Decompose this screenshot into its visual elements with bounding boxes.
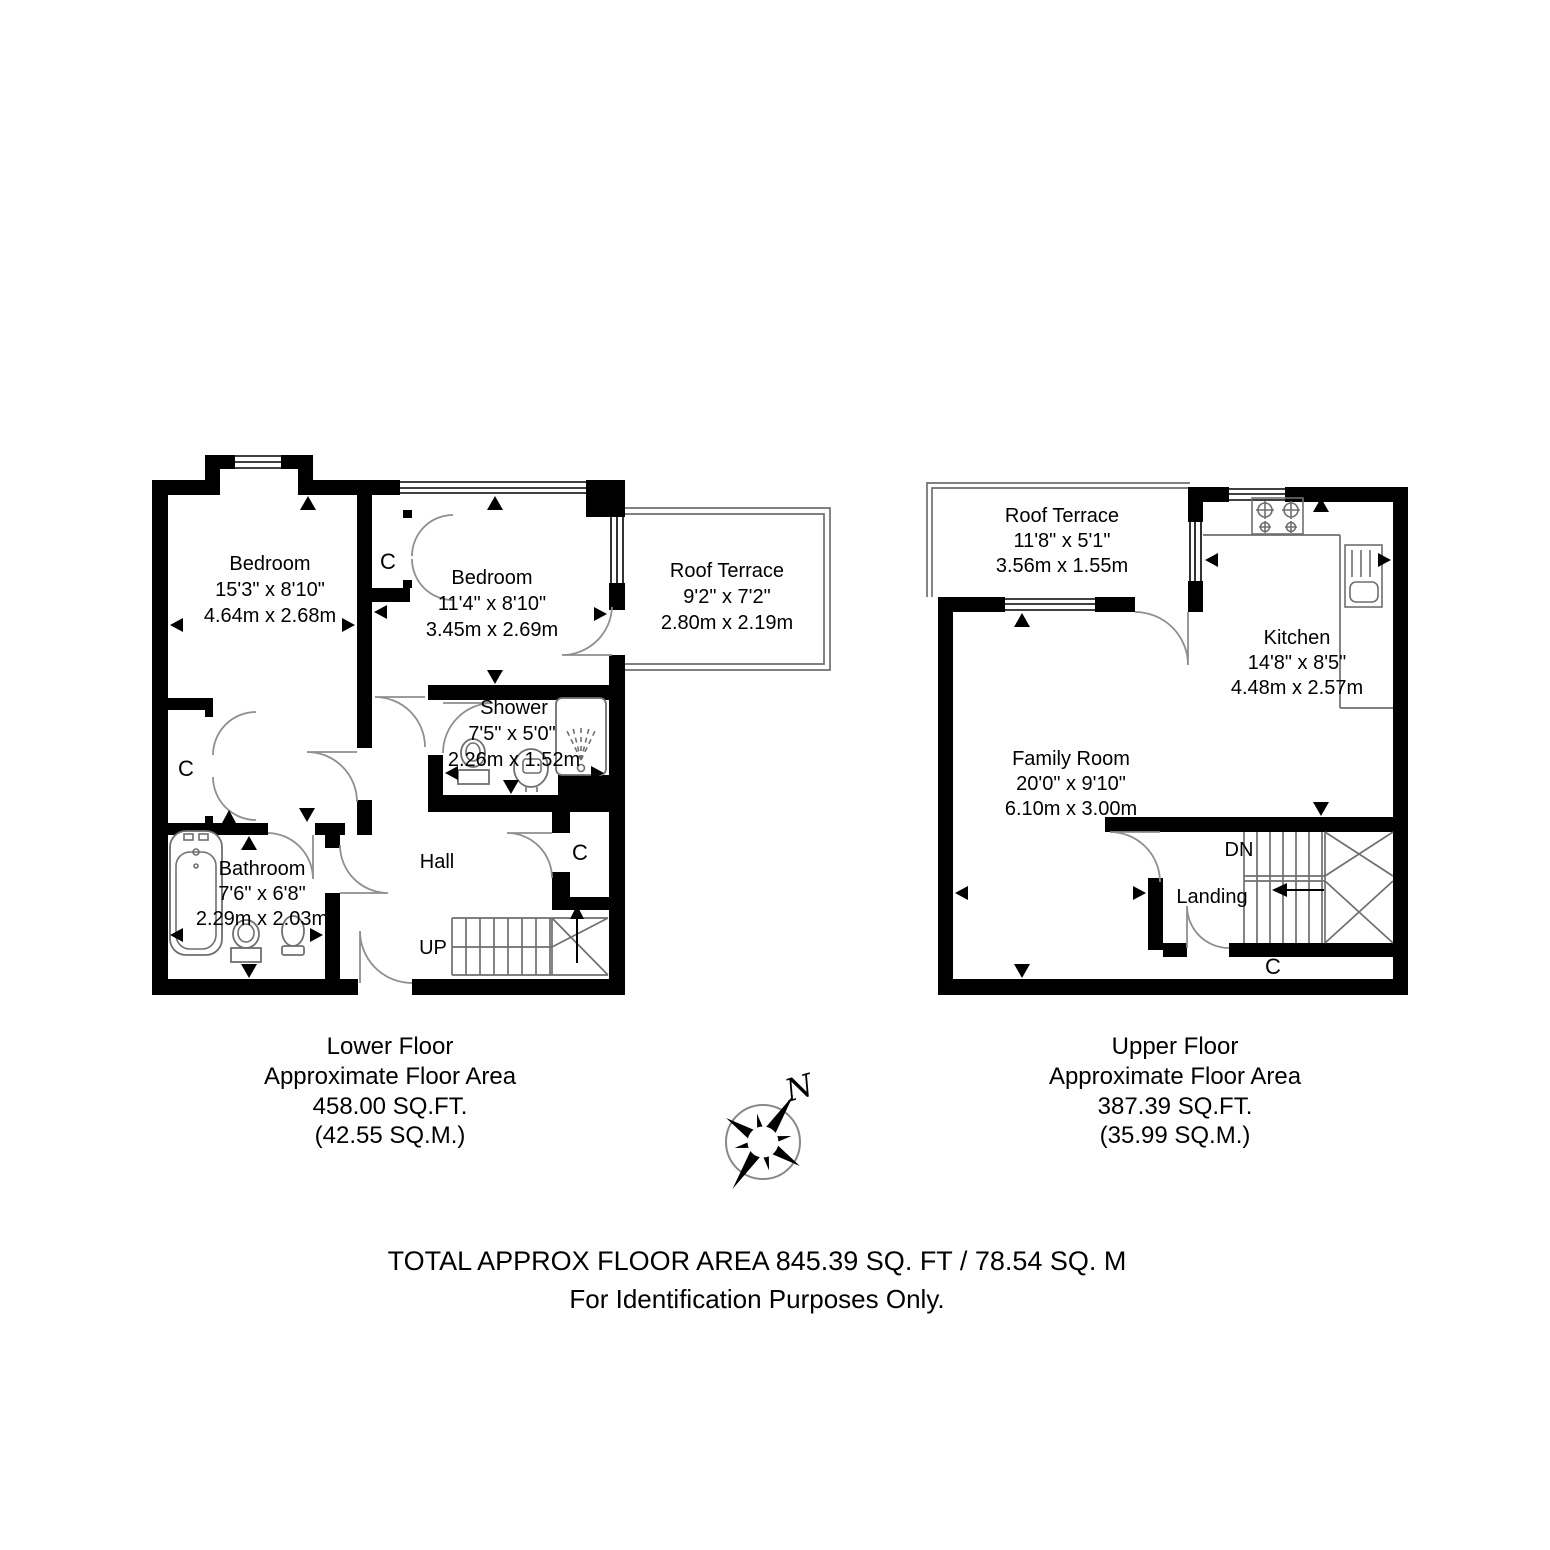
stairs-up bbox=[452, 905, 608, 975]
dim-arrow bbox=[487, 670, 503, 684]
bedroom2-name: Bedroom bbox=[451, 567, 532, 589]
dim-arrow bbox=[1014, 964, 1030, 978]
upper-terrace-metric: 3.56m x 1.55m bbox=[996, 555, 1128, 577]
dim-arrow bbox=[955, 886, 968, 900]
upper-caption-title: Upper Floor bbox=[1112, 1033, 1239, 1060]
family-room-name: Family Room bbox=[1012, 748, 1130, 770]
shower-name: Shower bbox=[480, 697, 548, 719]
dim-arrow bbox=[1205, 553, 1218, 567]
bathroom-name: Bathroom bbox=[219, 858, 306, 880]
upper-caption-line3: 387.39 SQ.FT. bbox=[1098, 1093, 1253, 1120]
kitchen-family-door bbox=[1135, 612, 1188, 665]
shower-metric: 2.26m x 1.52m bbox=[448, 749, 580, 771]
captions: Lower Floor Approximate Floor Area 458.0… bbox=[264, 1033, 1302, 1149]
terrace-side-window bbox=[1189, 522, 1202, 581]
bathroom-hall-door bbox=[340, 845, 388, 893]
bay-window bbox=[235, 455, 281, 469]
closet-middle-bifold bbox=[412, 515, 453, 600]
upper-terrace-imperial: 11'8" x 5'1" bbox=[1013, 530, 1110, 552]
dim-arrow bbox=[1313, 802, 1329, 816]
bedroom2-metric: 3.45m x 2.69m bbox=[426, 619, 558, 641]
kitchen-imperial: 14'8" x 8'5" bbox=[1248, 652, 1347, 674]
upper-closet-label: C bbox=[1265, 954, 1281, 979]
lower-caption-line4: (42.55 SQ.M.) bbox=[315, 1122, 466, 1149]
dim-arrow bbox=[374, 605, 387, 619]
bathroom-imperial: 7'6" x 6'8" bbox=[218, 883, 305, 905]
upper-terrace-name: Roof Terrace bbox=[1005, 505, 1119, 527]
closet-middle-label: C bbox=[380, 549, 396, 574]
stairs-up-label: UP bbox=[419, 937, 447, 959]
compass-north-label: N bbox=[780, 1067, 819, 1110]
closet-hall-label: C bbox=[572, 840, 588, 865]
bedroom1-door bbox=[307, 752, 357, 802]
bathroom-metric: 2.29m x 2.03m bbox=[196, 908, 328, 930]
bedroom2-imperial: 11'4" x 8'10" bbox=[438, 593, 546, 615]
bedroom1-metric: 4.64m x 2.68m bbox=[204, 605, 336, 627]
floorplan-page: Bedroom 15'3" x 8'10" 4.64m x 2.68m C Be… bbox=[0, 0, 1550, 1550]
bedroom2-window bbox=[400, 481, 586, 494]
lower-floor-plan: Bedroom 15'3" x 8'10" 4.64m x 2.68m C Be… bbox=[152, 455, 830, 995]
family-room-metric: 6.10m x 3.00m bbox=[1005, 798, 1137, 820]
lower-labels: Bedroom 15'3" x 8'10" 4.64m x 2.68m C Be… bbox=[178, 549, 793, 959]
dim-arrow bbox=[310, 928, 323, 942]
dim-arrow bbox=[503, 780, 519, 794]
family-room-imperial: 20'0" x 9'10" bbox=[1016, 773, 1126, 795]
bedroom2-side-window bbox=[610, 517, 624, 583]
bedroom2-door bbox=[375, 697, 425, 747]
total-area-text: TOTAL APPROX FLOOR AREA 845.39 SQ. FT / … bbox=[388, 1246, 1127, 1276]
dim-arrow bbox=[222, 810, 236, 823]
dim-arrow bbox=[487, 496, 503, 510]
landing-label: Landing bbox=[1176, 886, 1247, 908]
dim-arrow bbox=[300, 496, 316, 510]
bedroom1-name: Bedroom bbox=[229, 553, 310, 575]
dim-arrow bbox=[1014, 613, 1030, 627]
upper-floor-plan: Roof Terrace 11'8" x 5'1" 3.56m x 1.55m … bbox=[927, 483, 1408, 995]
lower-terrace-name: Roof Terrace bbox=[670, 560, 784, 582]
identification-text: For Identification Purposes Only. bbox=[569, 1284, 944, 1314]
front-door bbox=[360, 931, 412, 983]
landing-closet-door bbox=[1187, 906, 1229, 948]
stairs-down bbox=[1244, 832, 1393, 943]
hall-closet-door bbox=[507, 833, 552, 878]
lower-caption-line3: 458.00 SQ.FT. bbox=[313, 1093, 468, 1120]
upper-caption-line2: Approximate Floor Area bbox=[1049, 1063, 1302, 1090]
dim-arrow bbox=[342, 618, 355, 632]
shower-imperial: 7'5" x 5'0" bbox=[468, 723, 555, 745]
dim-arrow bbox=[594, 607, 607, 621]
closet-left-bifold bbox=[213, 712, 256, 820]
hob bbox=[1252, 498, 1303, 534]
hall-label: Hall bbox=[420, 851, 454, 873]
upper-caption-line4: (35.99 SQ.M.) bbox=[1100, 1122, 1251, 1149]
closet-left-label: C bbox=[178, 756, 194, 781]
dim-arrow bbox=[1378, 553, 1391, 567]
kitchen-name: Kitchen bbox=[1264, 627, 1331, 649]
kitchen-sink bbox=[1345, 545, 1382, 607]
dim-arrow bbox=[170, 618, 183, 632]
compass-center bbox=[748, 1127, 779, 1158]
family-landing-door bbox=[1110, 832, 1160, 882]
dim-arrow bbox=[1133, 886, 1146, 900]
dim-arrow bbox=[299, 808, 315, 822]
lower-terrace-imperial: 9'2" x 7'2" bbox=[683, 586, 770, 608]
stairs-dn-label: DN bbox=[1225, 839, 1254, 861]
dim-arrow bbox=[241, 964, 257, 978]
compass-rose: N bbox=[696, 1067, 831, 1213]
kitchen-window bbox=[1229, 488, 1285, 501]
lower-caption-line2: Approximate Floor Area bbox=[264, 1063, 517, 1090]
upper-labels: Roof Terrace 11'8" x 5'1" 3.56m x 1.55m … bbox=[996, 505, 1363, 979]
dim-arrow bbox=[241, 836, 257, 850]
kitchen-metric: 4.48m x 2.57m bbox=[1231, 677, 1363, 699]
lower-caption-title: Lower Floor bbox=[327, 1033, 454, 1060]
lower-terrace-metric: 2.80m x 2.19m bbox=[661, 612, 793, 634]
family-room-window bbox=[1005, 598, 1095, 611]
bedroom1-imperial: 15'3" x 8'10" bbox=[215, 579, 325, 601]
footer: TOTAL APPROX FLOOR AREA 845.39 SQ. FT / … bbox=[388, 1246, 1127, 1314]
floorplan-canvas: Bedroom 15'3" x 8'10" 4.64m x 2.68m C Be… bbox=[0, 0, 1550, 1550]
